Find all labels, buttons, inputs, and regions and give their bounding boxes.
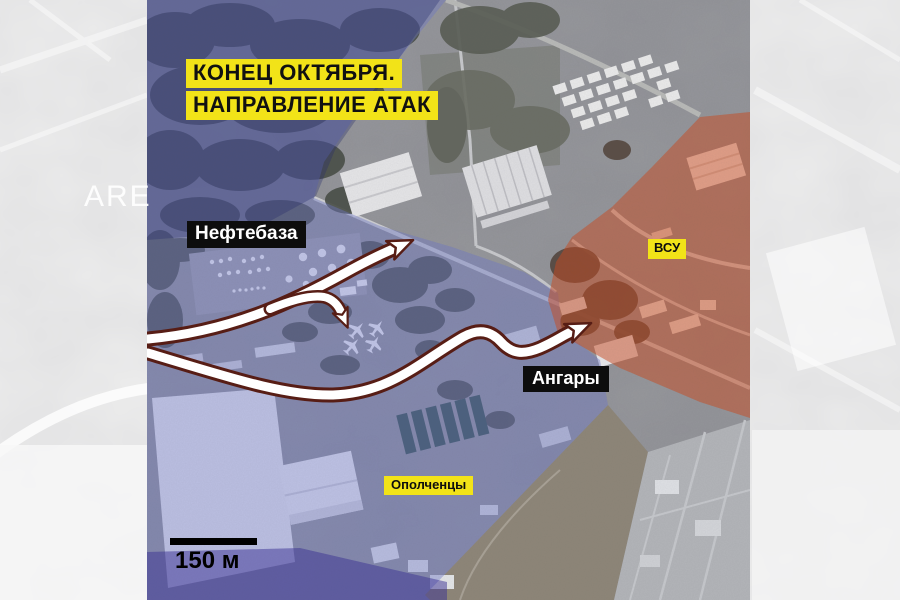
label-hangars: Ангары xyxy=(523,366,609,392)
scale-bar xyxy=(170,538,257,545)
label-militia: Ополченцы xyxy=(384,476,473,495)
scale-label: 150 м xyxy=(175,547,239,575)
scene xyxy=(0,0,900,600)
label-ukrainian-forces: ВСУ xyxy=(648,239,686,259)
map-title-line1: КОНЕЦ ОКТЯБРЯ. xyxy=(186,59,402,88)
map-title-line2: НАПРАВЛЕНИЕ АТАК xyxy=(186,91,438,120)
infographic: ARE КОНЕЦ ОКТЯБРЯ. НАПРАВЛЕНИЕ АТАК Нефт… xyxy=(0,0,900,600)
background-watermark: ARE xyxy=(84,180,152,214)
label-oil-depot: Нефтебаза xyxy=(187,221,306,248)
map-title: КОНЕЦ ОКТЯБРЯ. НАПРАВЛЕНИЕ АТАК xyxy=(186,59,438,123)
